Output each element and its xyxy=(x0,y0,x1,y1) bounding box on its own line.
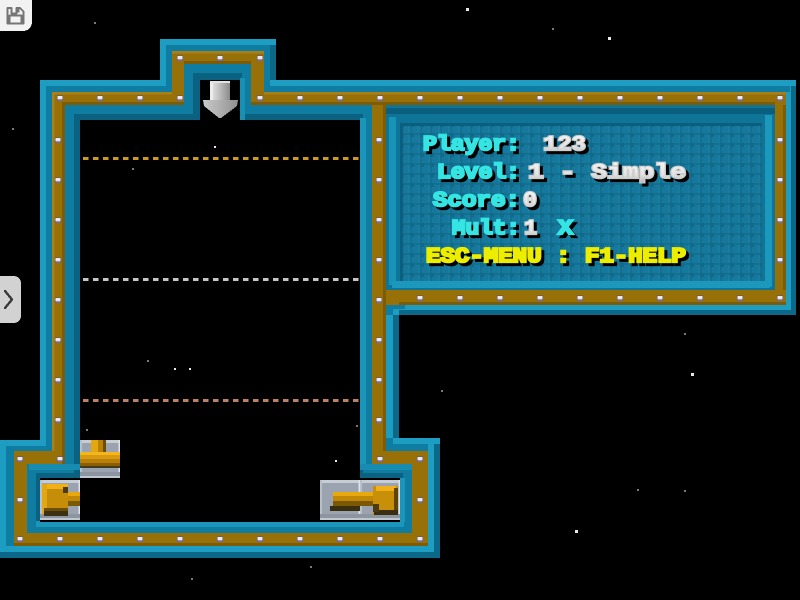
svg-text:1 - Simple: 1 - Simple xyxy=(528,162,686,185)
svg-text:Mult:: Mult: xyxy=(452,218,520,241)
svg-text:1: 1 xyxy=(524,218,537,241)
svg-text:ESC-MENU : F1-HELP: ESC-MENU : F1-HELP xyxy=(426,246,686,269)
svg-text:X: X xyxy=(558,218,573,241)
svg-text:0: 0 xyxy=(523,190,537,213)
svg-text:Level:: Level: xyxy=(437,162,520,185)
svg-text:123: 123 xyxy=(543,134,586,157)
svg-text:Player:: Player: xyxy=(423,134,520,157)
svg-text:Score:: Score: xyxy=(433,190,520,213)
